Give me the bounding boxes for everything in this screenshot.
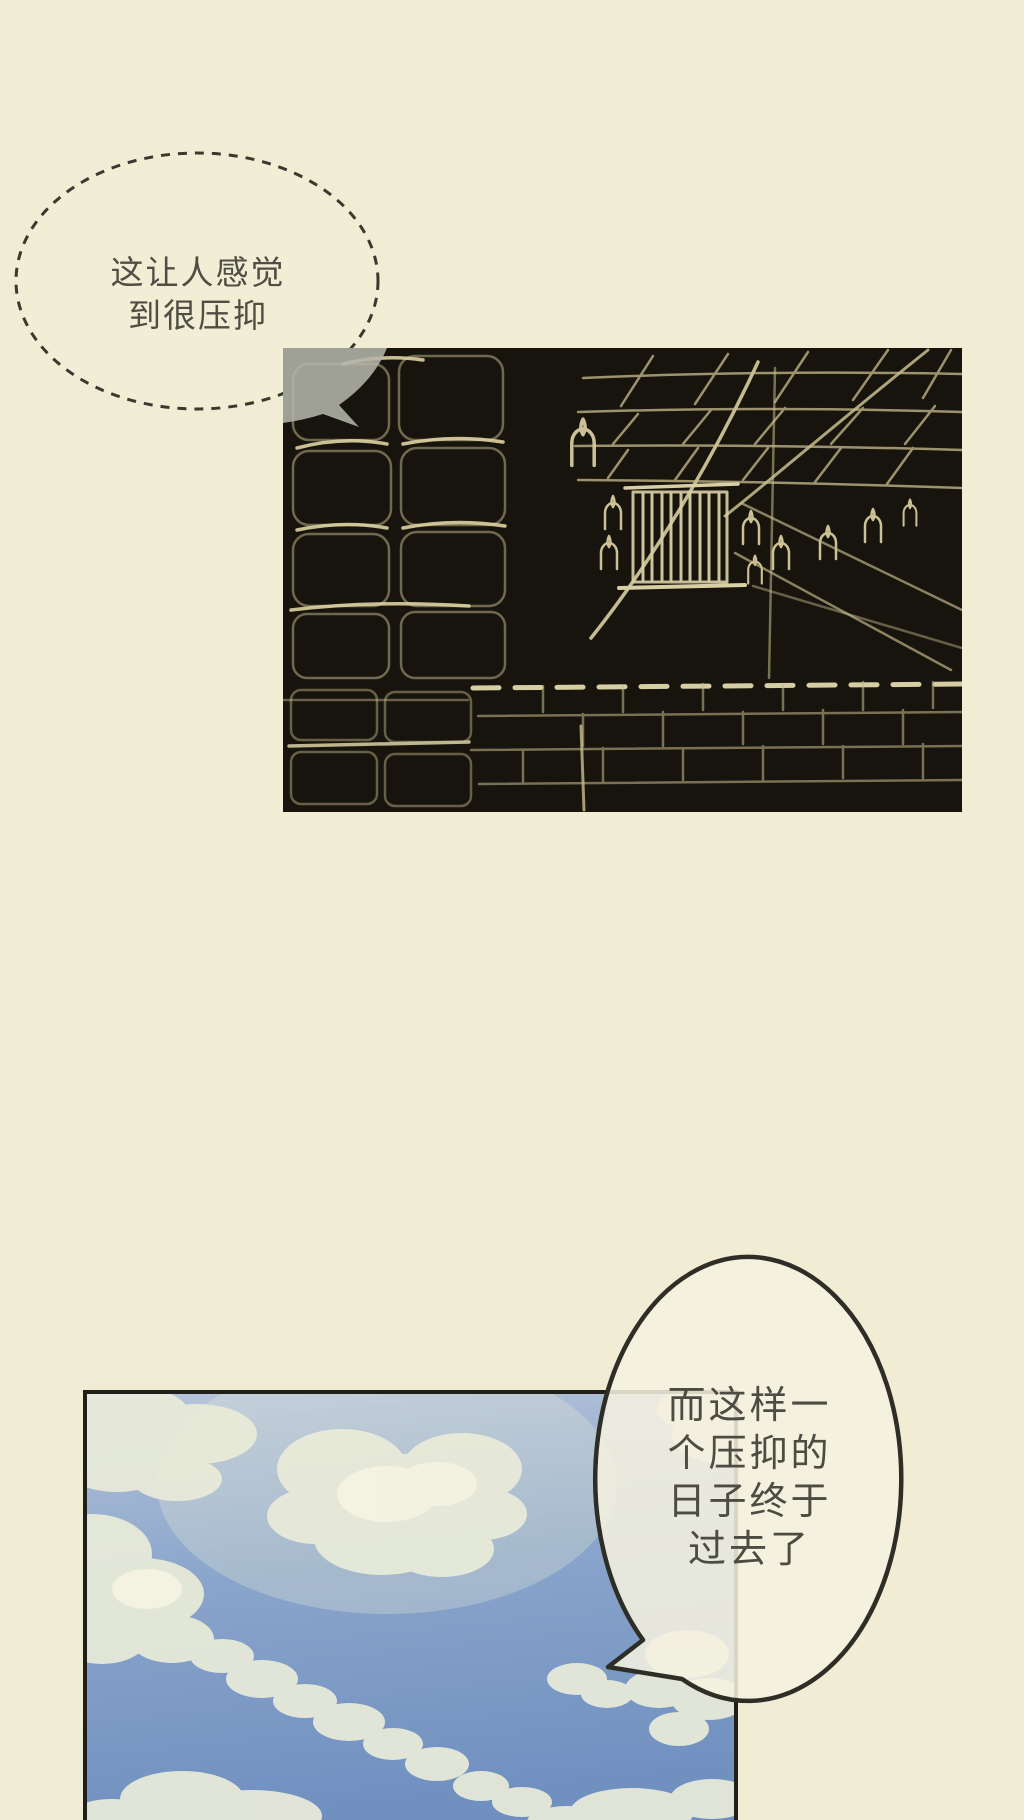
- bottom-bubble-line: 过去了: [685, 1526, 811, 1574]
- bottom-bubble-line: 而这样一: [664, 1382, 831, 1430]
- bottom-bubble-line: 个压抑的: [664, 1430, 831, 1478]
- top-bubble-text: 这让人感觉 到很压抑: [12, 150, 382, 412]
- comic-page: 这让人感觉 到很压抑: [0, 0, 1024, 1820]
- top-bubble-line: 这让人感觉: [109, 251, 286, 294]
- top-bubble-line: 到很压抑: [126, 294, 268, 337]
- dungeon-panel: [283, 348, 962, 812]
- bottom-bubble-text: 而这样一 个压抑的 日子终于 过去了: [595, 1256, 901, 1700]
- bottom-bubble-line: 日子终于: [664, 1478, 831, 1526]
- dungeon-artwork: [283, 348, 962, 812]
